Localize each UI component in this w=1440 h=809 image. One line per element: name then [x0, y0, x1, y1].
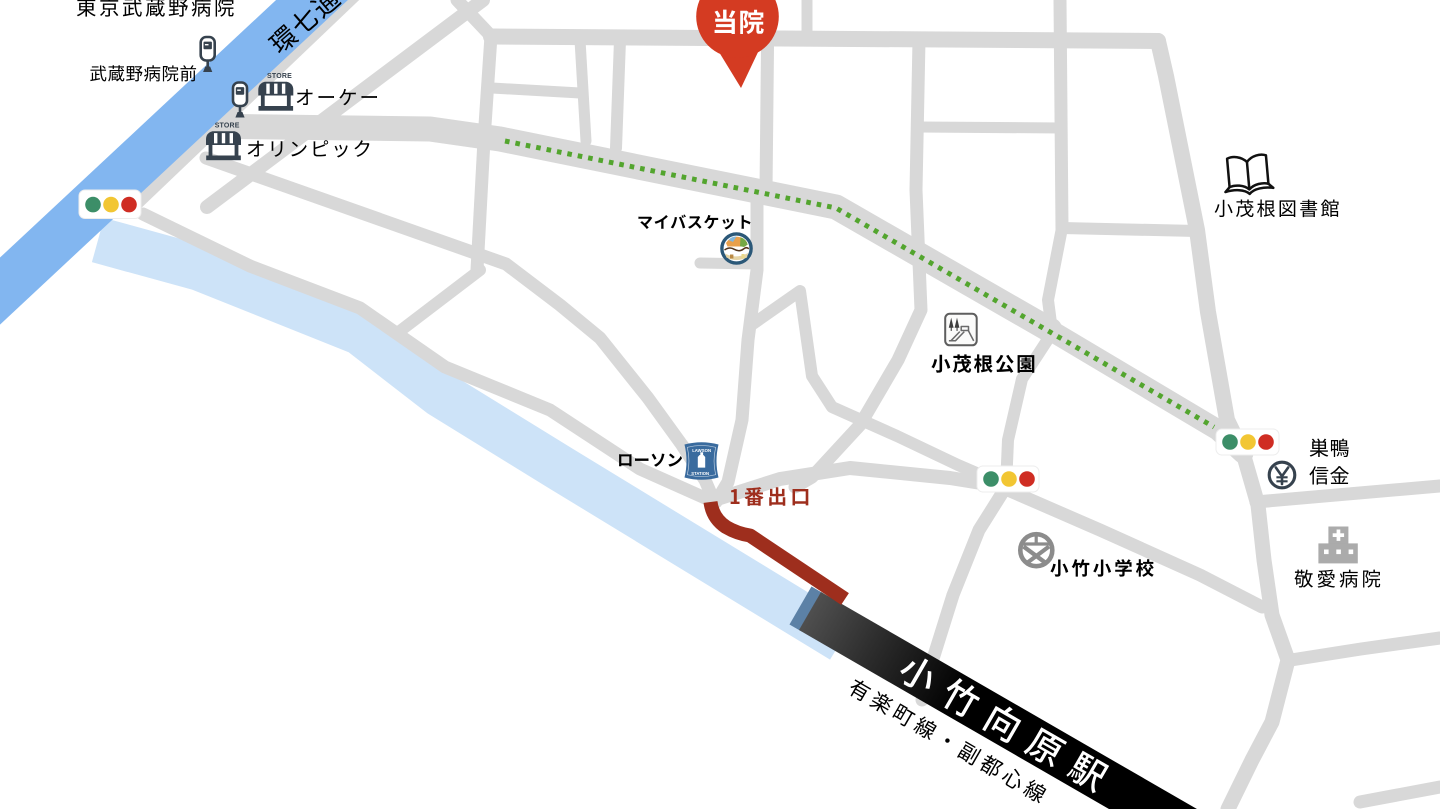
svg-text:LAWSON: LAWSON	[692, 448, 711, 453]
svg-text:STATION: STATION	[691, 471, 709, 476]
svg-text:STORE: STORE	[215, 123, 240, 130]
svg-text:STORE: STORE	[267, 73, 292, 80]
